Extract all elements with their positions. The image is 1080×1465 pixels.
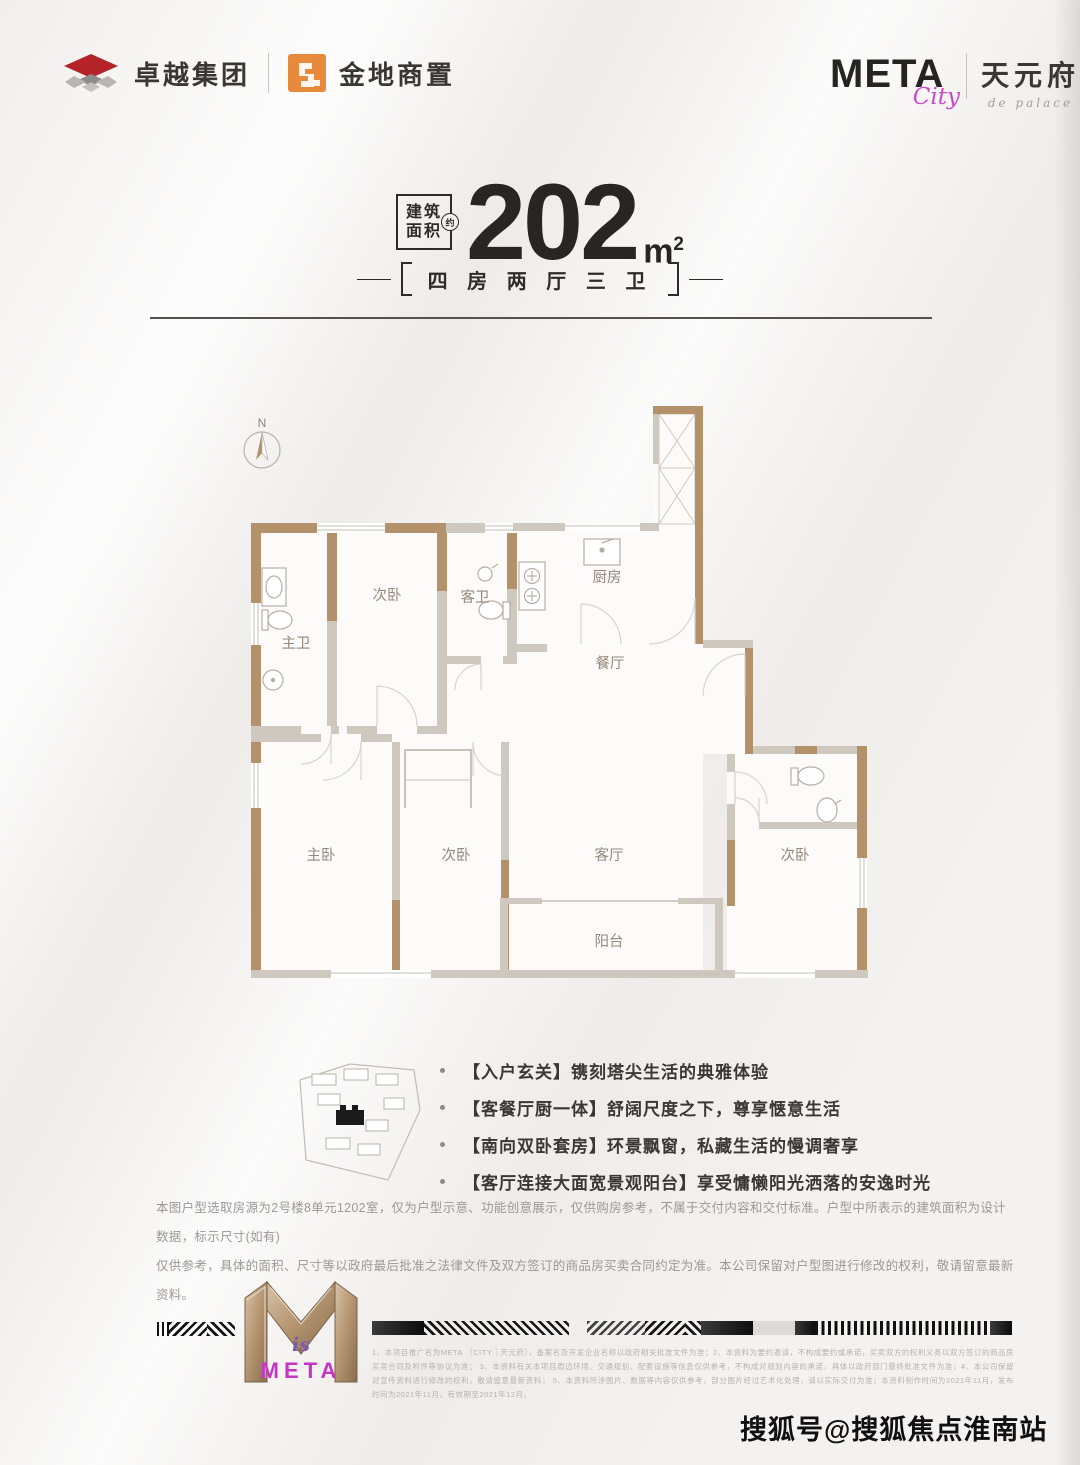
bullet-dot-icon: [440, 1105, 445, 1110]
room-label-kitchen: 厨房: [593, 569, 622, 586]
area-unit: m2: [643, 230, 684, 266]
barcode-decoration-right: [372, 1321, 1012, 1335]
subtitle-bracket-left: [401, 262, 412, 296]
subtitle-line-left: [357, 279, 391, 280]
feature-text-2: 【客餐厅厨一体】舒阔尺度之下，尊享惬意生活: [463, 1095, 841, 1120]
site-plan-thumbnail: [292, 1058, 428, 1186]
room-label-bedroom-4: 次卧: [781, 847, 810, 864]
area-value: 202: [466, 178, 637, 266]
legal-fine-print: 1、本项目推广名为META （CITY｜天元府），备案名及开发企业名称以政府相关…: [372, 1346, 1014, 1402]
room-label-living: 客厅: [595, 847, 624, 864]
feature-text-4: 【客厅连接大面宽景观阳台】享受慵懒阳光洒落的安逸时光: [463, 1169, 931, 1194]
gemdale-logo-icon: [287, 53, 327, 93]
compass-label: N: [258, 416, 267, 430]
area-title: 建筑 面积 约 202 m2: [0, 178, 1080, 266]
room-label-dining: 餐厅: [596, 655, 625, 672]
highlighted-building: [336, 1105, 364, 1125]
m-logo-is-text: is: [237, 1334, 365, 1356]
excellence-group-logo-icon: [60, 52, 122, 94]
bullet-dot-icon: [440, 1068, 445, 1073]
horizontal-rule: [150, 317, 932, 319]
feature-item: 【客餐厅厨一体】舒阔尺度之下，尊享惬意生活: [440, 1089, 960, 1126]
compass-icon: N: [244, 416, 280, 468]
header-divider: [268, 53, 269, 93]
feature-text-1: 【入户玄关】镌刻塔尖生活的典雅体验: [463, 1058, 769, 1083]
room-label-master-bed: 主卧: [307, 847, 336, 864]
flyer-page: 卓越集团 金地商置 META City 天元府 de palace 建筑 面积 …: [0, 0, 1080, 1465]
header-divider-2: [966, 53, 967, 99]
area-label-line2: 面积: [406, 222, 442, 241]
meta-logo-script: City: [913, 84, 960, 110]
room-label-bedroom-3: 次卧: [442, 847, 471, 864]
area-label-line1: 建筑: [406, 203, 442, 222]
feature-text-3: 【南向双卧套房】环景飘窗，私藏生活的慢调奢享: [463, 1132, 859, 1157]
feature-list: 【入户玄关】镌刻塔尖生活的典雅体验 【客餐厅厨一体】舒阔尺度之下，尊享惬意生活 …: [440, 1052, 960, 1200]
floorplan-diagram: 主卫 次卧 客卫 厨房 餐厅 主卧 次卧 客厅 次卧 阳台 N: [235, 398, 875, 998]
feature-item: 【南向双卧套房】环景飘窗，私藏生活的慢调奢享: [440, 1126, 960, 1163]
brand-left-name-2: 金地商置: [339, 55, 455, 92]
area-label-box: 建筑 面积 约: [396, 194, 452, 250]
layout-text: 四 房 两 厅 三 卫: [422, 265, 659, 294]
room-label-guest-bath: 客卫: [461, 589, 490, 606]
disclaimer-line-1: 本图户型选取房源为2号楼8单元1202室，仅为户型示意、功能创意展示，仅供购房参…: [156, 1194, 1014, 1252]
subtitle-line-right: [689, 279, 723, 280]
bullet-dot-icon: [440, 1142, 445, 1147]
project-name-sub: de palace: [988, 96, 1073, 110]
sohu-watermark: 搜狐号@搜狐焦点淮南站: [740, 1408, 1047, 1447]
room-label-balcony: 阳台: [595, 933, 624, 950]
meta-logo: META City: [830, 50, 952, 102]
project-name-block: 天元府 de palace: [981, 50, 1080, 110]
subtitle-bracket-right: [668, 262, 679, 296]
m-logo-meta-text: META: [237, 1358, 365, 1384]
room-label-master-bath: 主卫: [282, 635, 311, 652]
approx-badge: 约: [441, 213, 459, 231]
bullet-dot-icon: [440, 1179, 445, 1184]
feature-item: 【入户玄关】镌刻塔尖生活的典雅体验: [440, 1052, 960, 1089]
header-brand-left: 卓越集团 金地商置: [60, 52, 455, 94]
layout-subtitle: 四 房 两 厅 三 卫: [0, 262, 1080, 296]
barcode-decoration-left: [157, 1322, 235, 1336]
project-name: 天元府: [981, 54, 1080, 94]
header-brand-right: META City 天元府 de palace: [830, 50, 1080, 110]
room-label-bedroom-2: 次卧: [373, 587, 402, 604]
brand-left-name-1: 卓越集团: [134, 55, 250, 92]
